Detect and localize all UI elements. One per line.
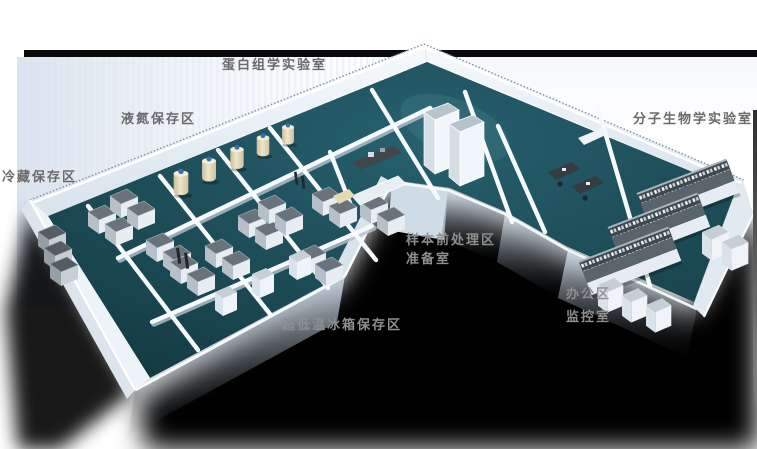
top-rule xyxy=(24,50,757,57)
label-proteomics-lab: 蛋白组学实验室 xyxy=(222,58,327,72)
label-office-area: 办公区 xyxy=(566,287,611,301)
label-sample-pretreatment-area: 样本前处理区 xyxy=(406,233,496,247)
label-ult-freezer-storage: 超低温冰箱保存区 xyxy=(282,318,402,332)
building-3d-render xyxy=(0,0,757,449)
label-cold-storage: 冷藏保存区 xyxy=(2,170,77,184)
label-prep-room: 准备室 xyxy=(406,252,451,266)
label-monitoring-room: 监控室 xyxy=(566,310,611,324)
lab-floorplan-3d: 蛋白组学实验室 液氮保存区 冷藏保存区 分子生物学实验室 样本前处理区 准备室 … xyxy=(0,0,757,449)
page-edge-line xyxy=(753,110,757,410)
label-liquid-nitrogen-storage: 液氮保存区 xyxy=(121,112,196,126)
label-molecular-biology-lab: 分子生物学实验室 xyxy=(633,112,753,126)
